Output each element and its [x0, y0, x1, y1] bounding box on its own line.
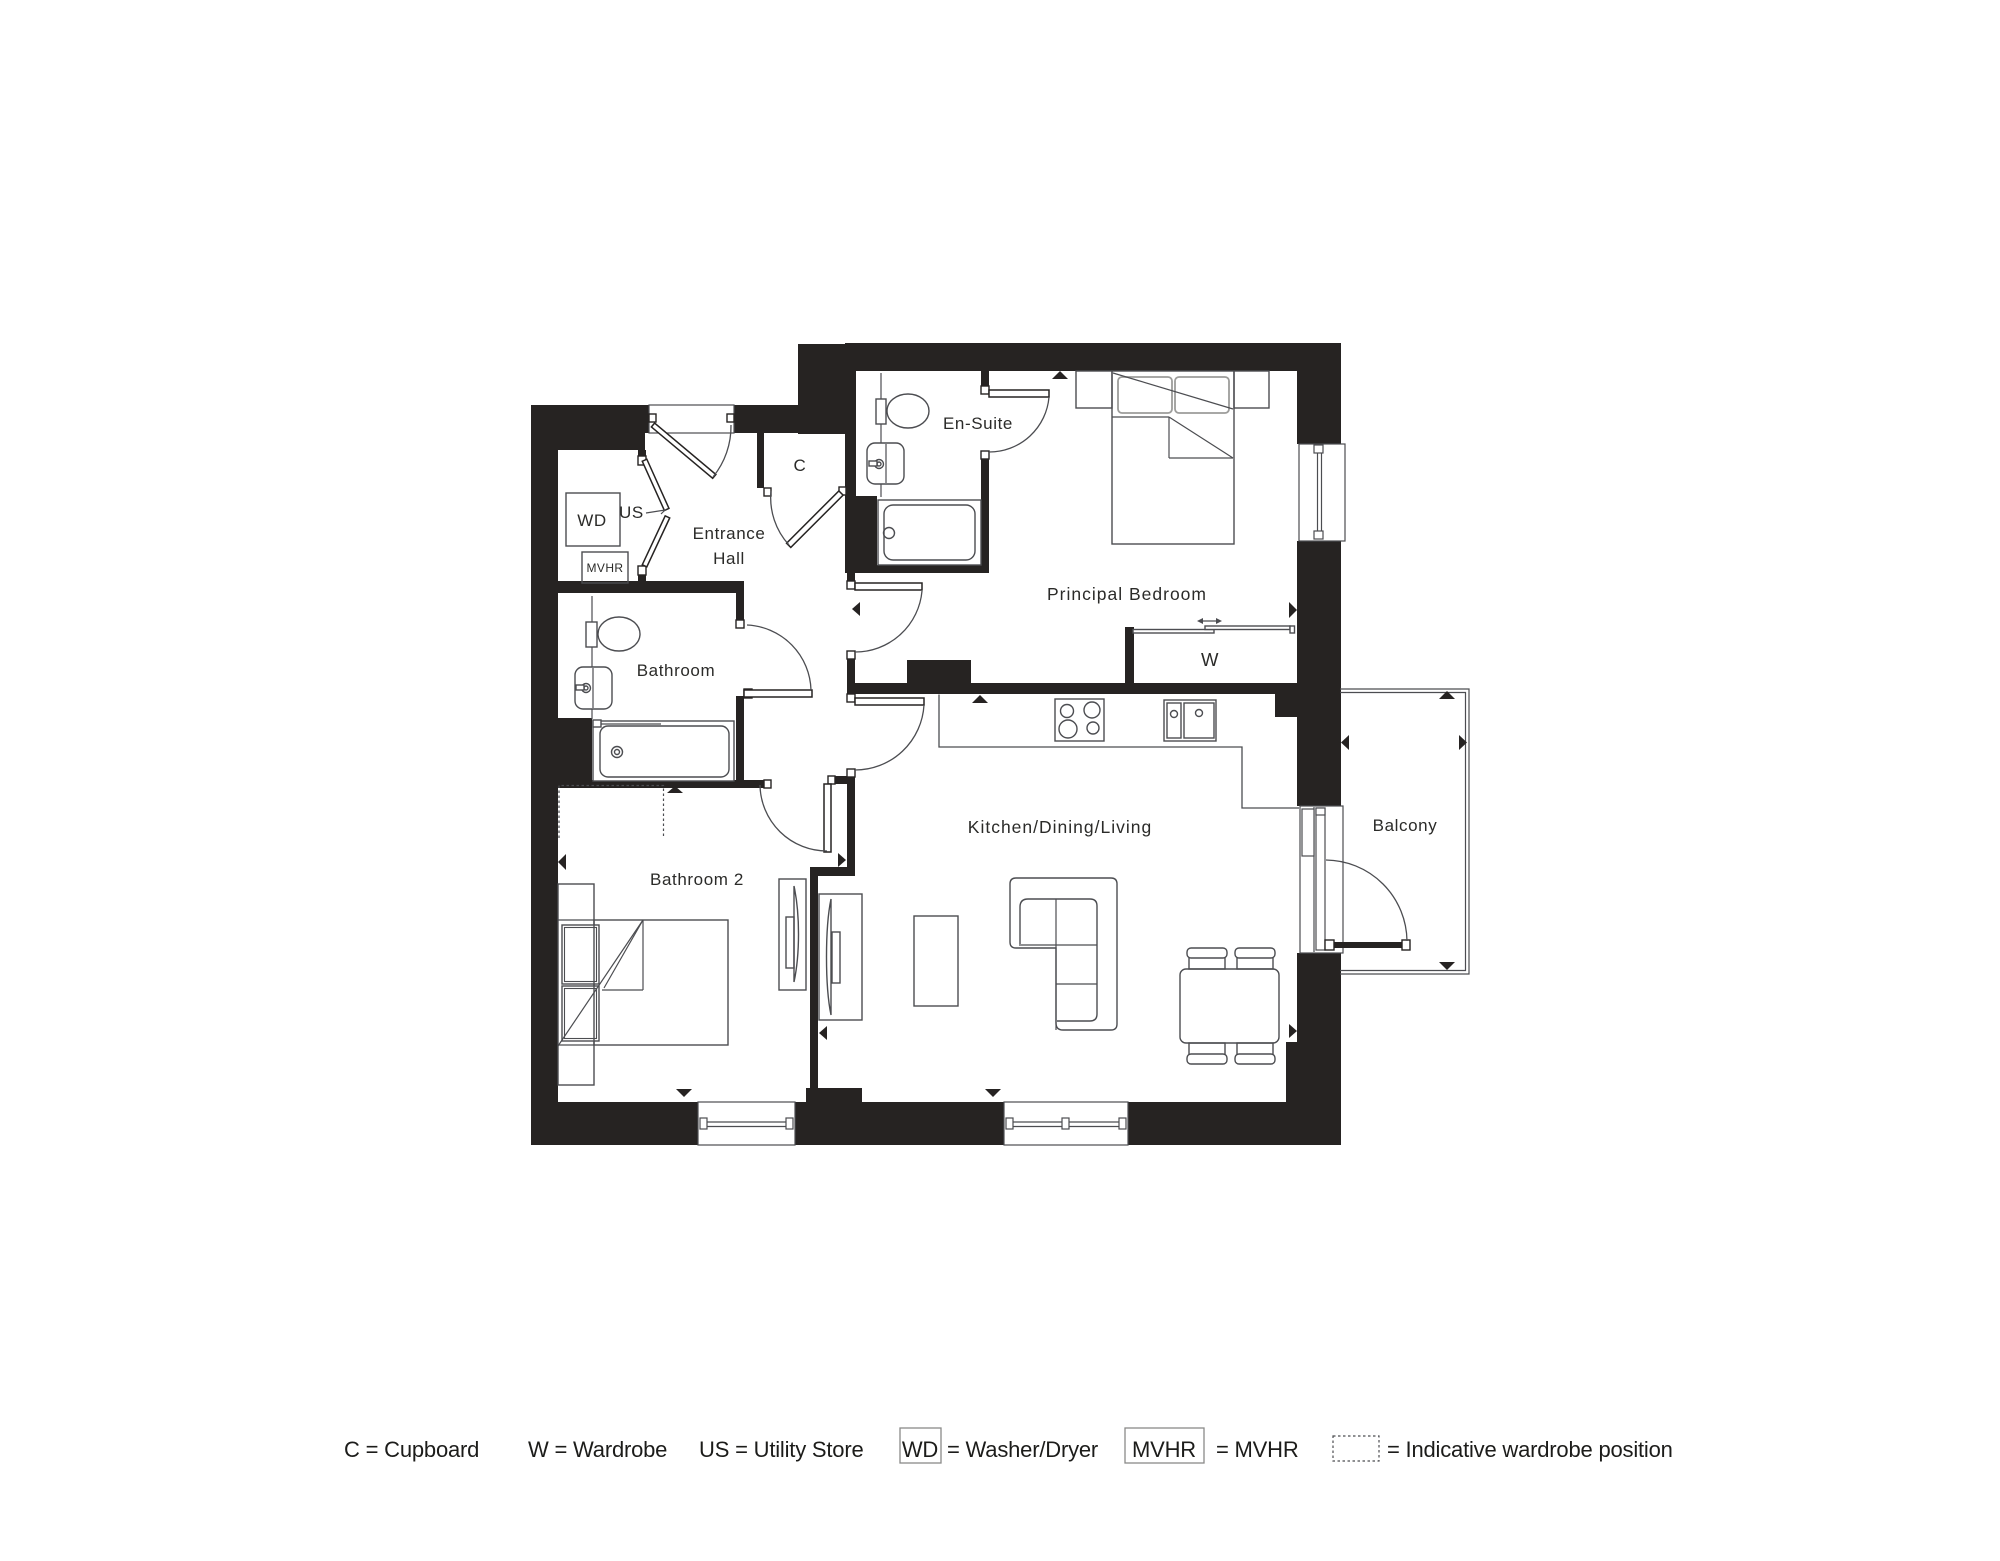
svg-text:US: US	[619, 503, 644, 522]
svg-text:W = Wardrobe: W = Wardrobe	[528, 1437, 667, 1462]
svg-text:MVHR: MVHR	[587, 561, 624, 575]
svg-text:Principal Bedroom: Principal Bedroom	[1047, 584, 1207, 604]
svg-text:WD: WD	[902, 1437, 938, 1462]
svg-text:MVHR: MVHR	[1132, 1437, 1196, 1462]
svg-text:C: C	[794, 456, 807, 475]
svg-text:WD: WD	[577, 511, 607, 530]
svg-text:Balcony: Balcony	[1373, 816, 1438, 835]
svg-text:Bathroom: Bathroom	[637, 661, 716, 680]
svg-text:= Washer/Dryer: = Washer/Dryer	[947, 1437, 1098, 1462]
svg-text:= MVHR: = MVHR	[1216, 1437, 1299, 1462]
svg-text:W: W	[1201, 649, 1219, 670]
svg-text:Entrance: Entrance	[693, 524, 766, 543]
svg-text:C = Cupboard: C = Cupboard	[344, 1437, 479, 1462]
svg-text:= Indicative wardrobe position: = Indicative wardrobe position	[1387, 1437, 1673, 1462]
svg-text:US = Utility Store: US = Utility Store	[699, 1437, 864, 1462]
svg-text:Kitchen/Dining/Living: Kitchen/Dining/Living	[968, 817, 1152, 837]
svg-text:En-Suite: En-Suite	[943, 414, 1013, 433]
svg-text:Hall: Hall	[713, 549, 745, 568]
svg-text:Bathroom 2: Bathroom 2	[650, 870, 744, 889]
